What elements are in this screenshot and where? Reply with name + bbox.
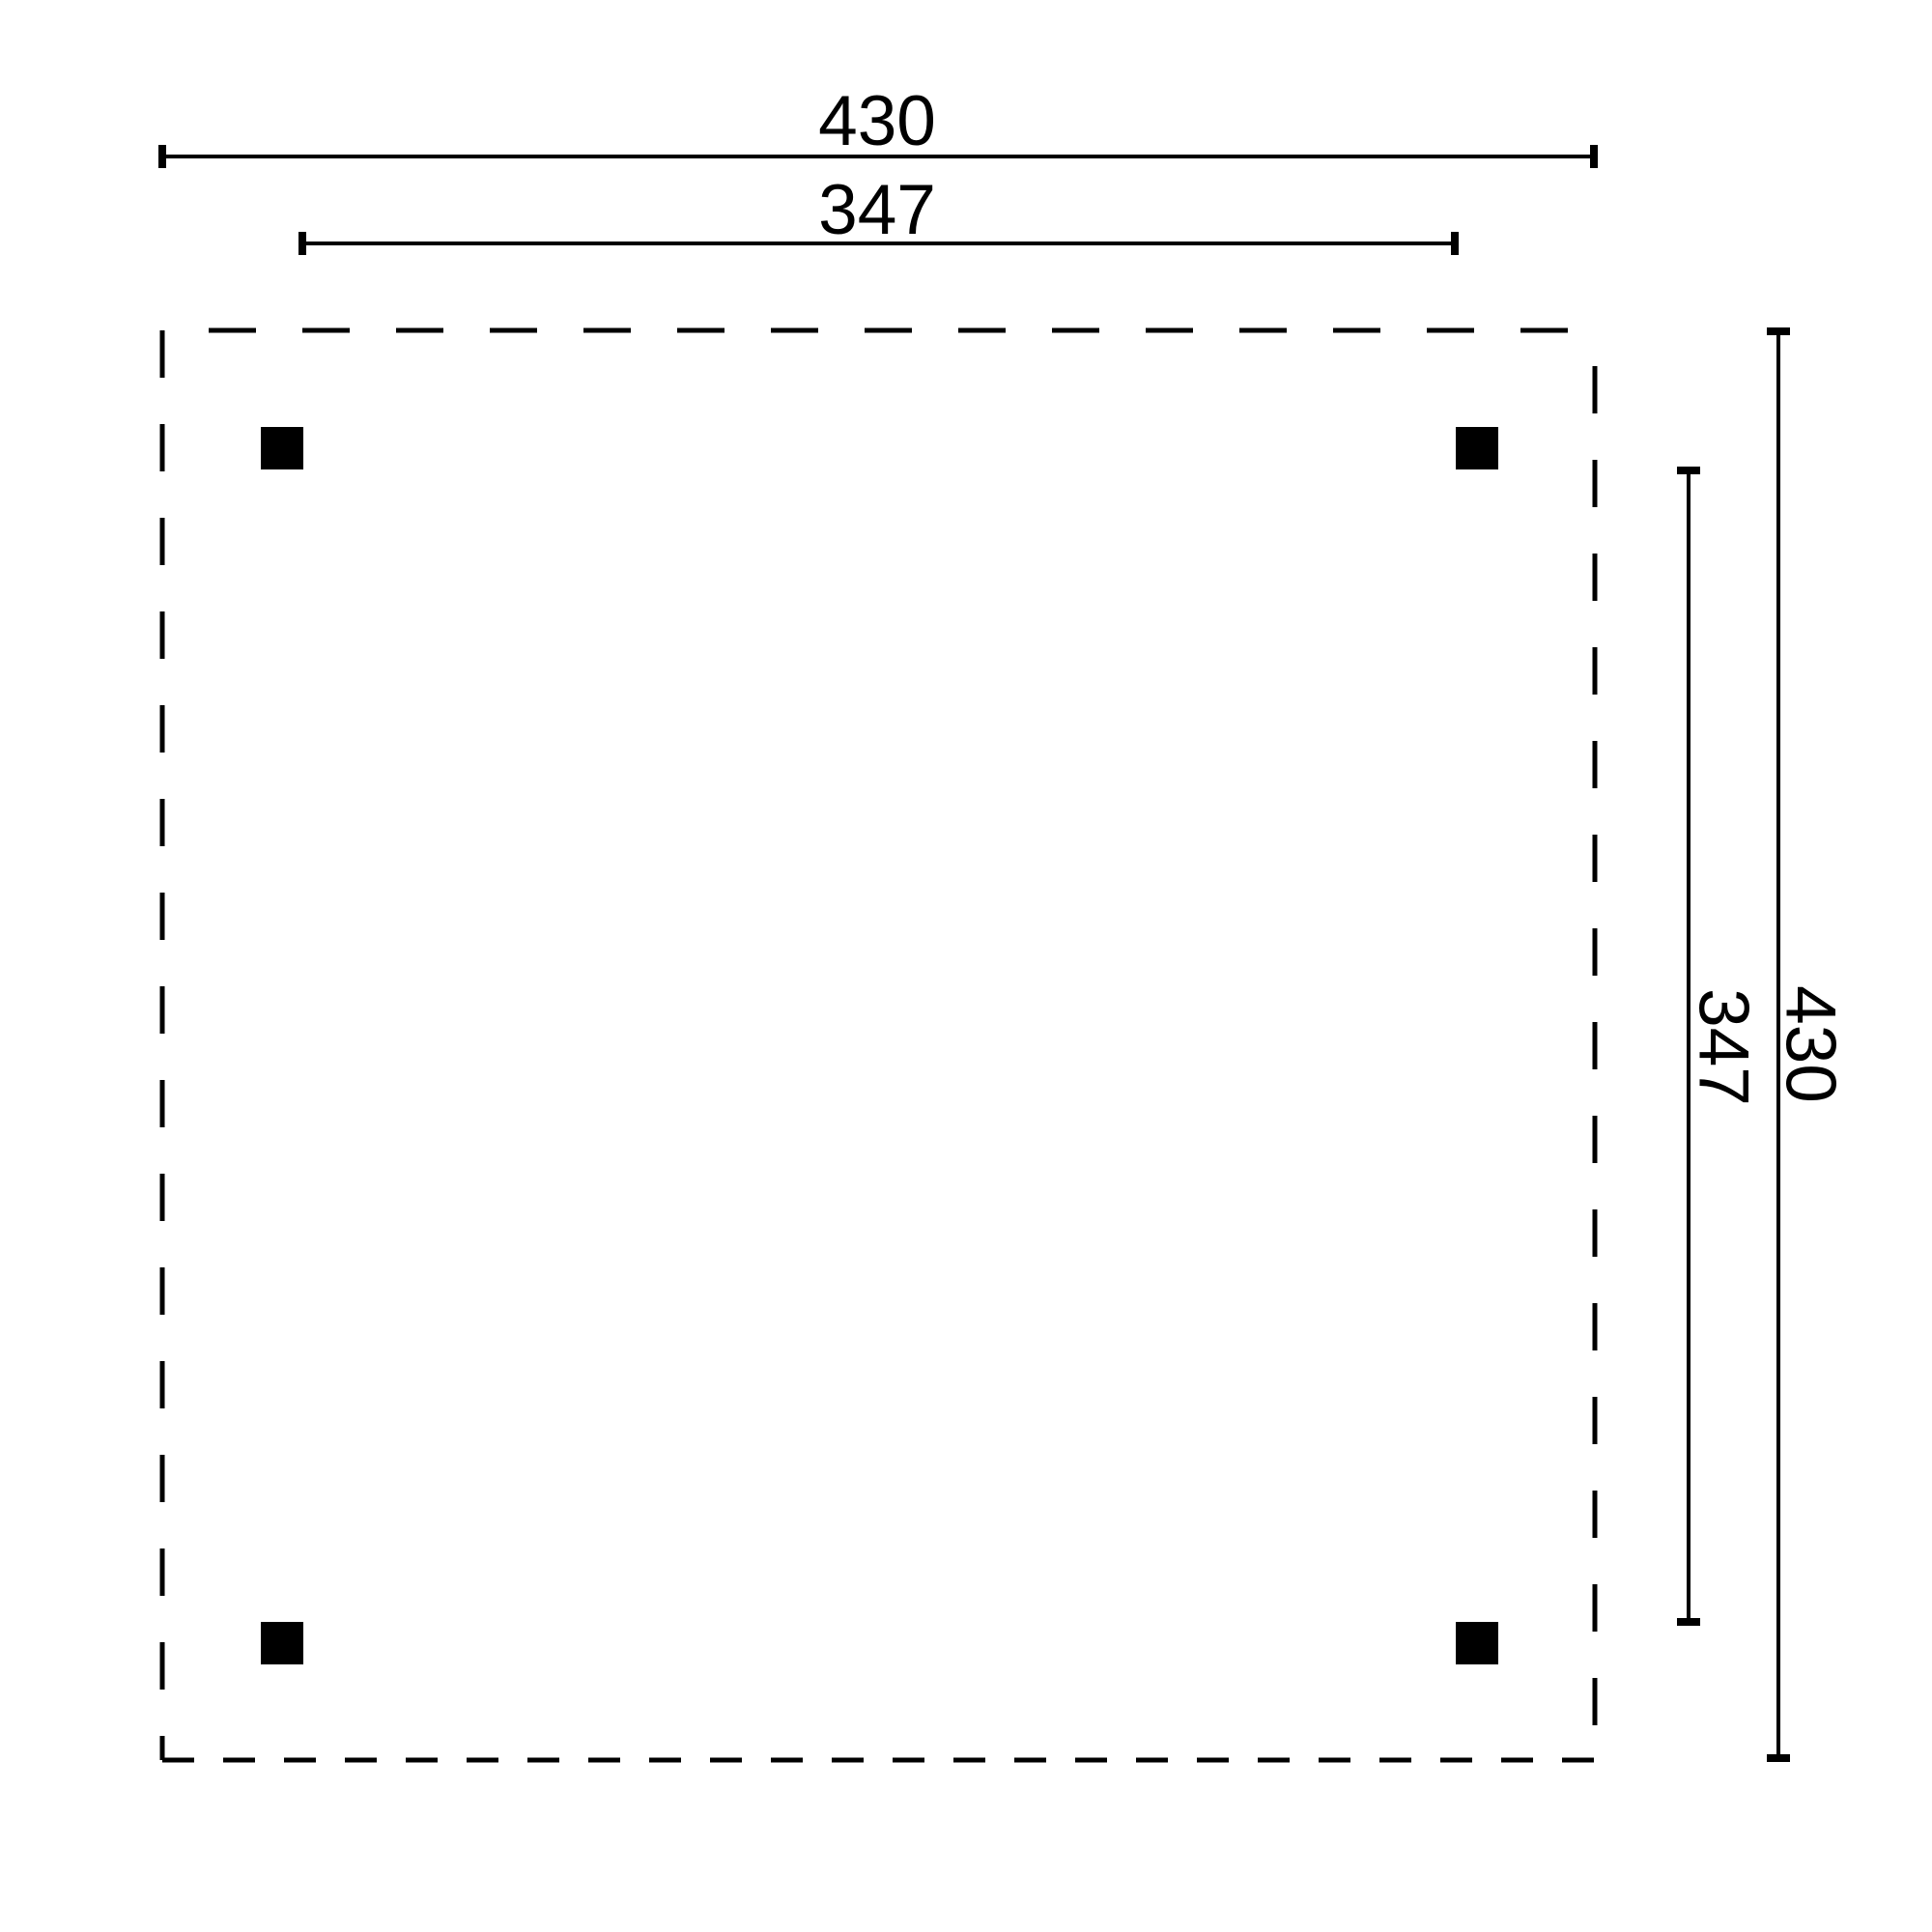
dim-depth-inner-tick-bottom: [1677, 1618, 1700, 1626]
post-top-right: [1456, 427, 1498, 469]
dim-width-overall: 430: [158, 82, 1598, 168]
dim-width-inner-tick-right: [1451, 232, 1459, 255]
dim-depth-inner: 347: [1677, 467, 1763, 1626]
plan-drawing: 430 347 430 347: [0, 0, 1932, 1932]
carport-floor-plan: 430 347 430 347: [0, 0, 1932, 1932]
dim-width-overall-tick-left: [158, 145, 166, 168]
dim-width-inner: 347: [298, 171, 1459, 255]
post-top-left: [261, 427, 303, 469]
posts: [261, 427, 1498, 1664]
dim-depth-overall-tick-bottom: [1767, 1754, 1790, 1762]
dim-width-inner-label: 347: [818, 171, 936, 249]
roof-outline-dashed: [162, 330, 1595, 1760]
dim-width-overall-tick-right: [1590, 145, 1598, 168]
post-bottom-right: [1456, 1622, 1498, 1664]
dim-depth-overall-label: 430: [1772, 985, 1850, 1103]
dim-depth-overall-tick-top: [1767, 327, 1790, 335]
dim-depth-inner-label: 347: [1685, 988, 1763, 1106]
dim-depth-inner-tick-top: [1677, 467, 1700, 474]
dim-width-inner-tick-left: [298, 232, 306, 255]
post-bottom-left: [261, 1622, 303, 1664]
dim-depth-overall: 430: [1767, 327, 1850, 1762]
dim-width-overall-label: 430: [818, 82, 936, 160]
